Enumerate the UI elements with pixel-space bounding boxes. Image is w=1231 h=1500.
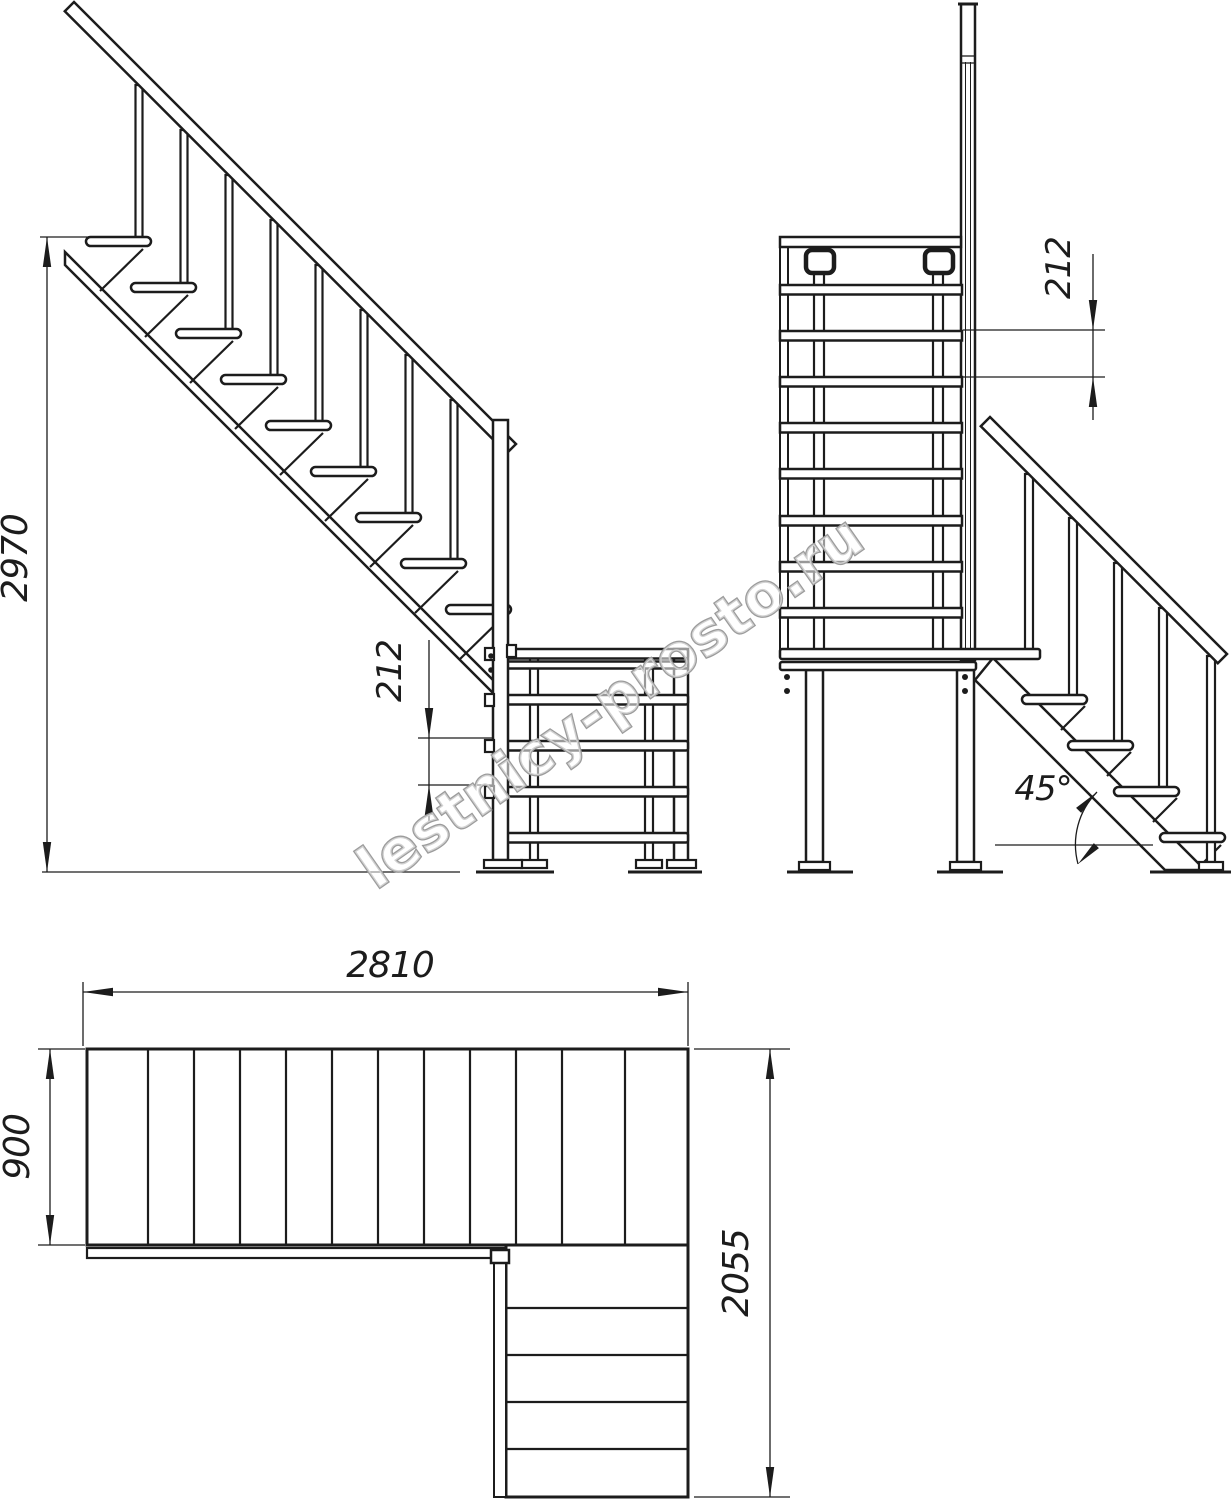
treads — [86, 237, 511, 614]
handrail — [65, 2, 516, 453]
staircase-drawing: 2970 212 — [0, 0, 1231, 1500]
plan-rail-strip — [87, 1248, 507, 1258]
plan-newel-marker — [491, 1250, 509, 1263]
lower-flight-plan — [506, 1245, 688, 1497]
dim-angle-label: 45° — [1014, 769, 1071, 809]
lower-handrail — [981, 417, 1227, 663]
tread-braces — [100, 249, 503, 659]
rail-connector — [806, 250, 834, 273]
plan-view: 2810 900 2055 — [0, 945, 790, 1497]
dim-total-depth-label: 2055 — [716, 1229, 757, 1317]
dim-flight-width-label: 900 — [0, 1114, 38, 1180]
dim-riser-front-label: 212 — [1039, 237, 1079, 299]
dim-flight-width: 900 — [0, 1049, 85, 1245]
upper-flight-plan — [87, 1049, 688, 1245]
dim-total-height: 2970 — [0, 237, 130, 872]
dim-total-depth: 2055 — [694, 1049, 790, 1497]
blueprint-page: 2970 212 — [0, 0, 1231, 1500]
dim-riser-side-label: 212 — [370, 640, 410, 702]
dim-total-height-label: 2970 — [0, 514, 36, 602]
dim-riser-front: 212 — [963, 237, 1105, 420]
dim-flight-length: 2810 — [83, 945, 688, 1046]
rail-connector — [925, 250, 953, 273]
plan-lower-rail-strip — [494, 1258, 506, 1497]
dim-flight-length-label: 2810 — [346, 945, 434, 986]
front-elevation-view: 212 45° — [780, 4, 1231, 872]
